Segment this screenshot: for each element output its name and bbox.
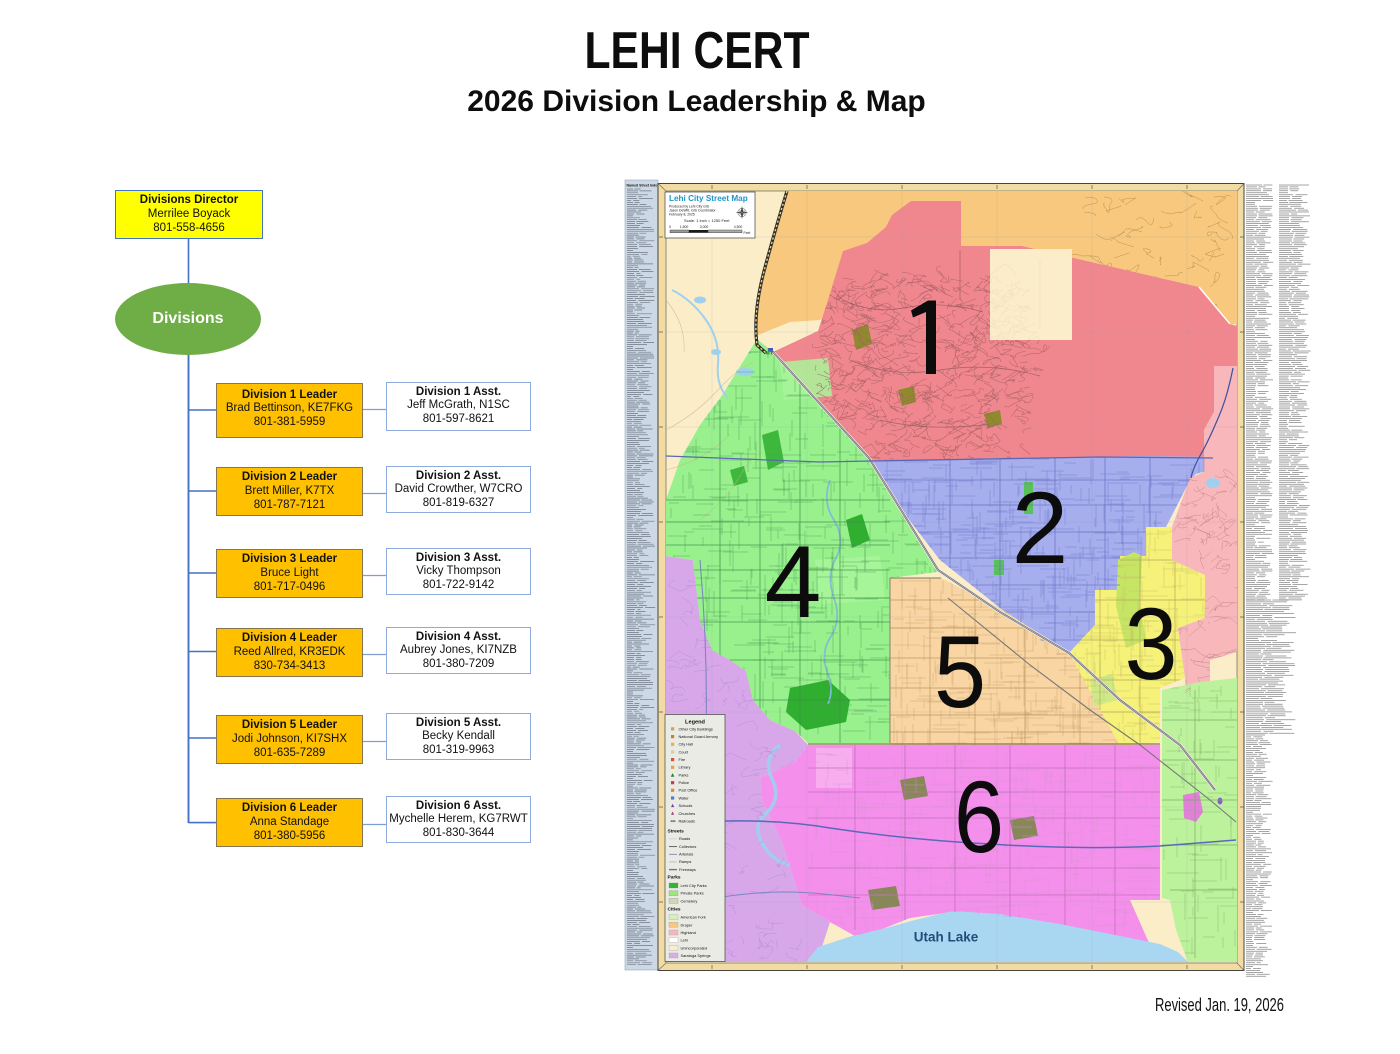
svg-text:Private Parks: Private Parks <box>681 891 704 896</box>
svg-text:3,000: 3,000 <box>700 225 709 229</box>
svg-text:3: 3 <box>1125 587 1178 701</box>
svg-text:Lehi City Street Map: Lehi City Street Map <box>669 194 748 203</box>
svg-text:Water: Water <box>679 795 690 800</box>
svg-text:Railroads: Railroads <box>679 819 695 824</box>
svg-text:0: 0 <box>669 225 671 229</box>
svg-text:Scale: 1 inch = 1250 Feet: Scale: 1 inch = 1250 Feet <box>684 218 730 223</box>
svg-text:Unincorporated: Unincorporated <box>681 945 708 950</box>
svg-text:Utah Lake: Utah Lake <box>914 930 979 945</box>
svg-text:Lehi City Parks: Lehi City Parks <box>681 883 707 888</box>
svg-text:Freeways: Freeways <box>679 867 696 872</box>
svg-text:4: 4 <box>765 525 822 639</box>
svg-text:Post Office: Post Office <box>679 788 698 793</box>
svg-text:Arterials: Arterials <box>679 852 693 857</box>
svg-text:Schools: Schools <box>679 803 693 808</box>
svg-text:Fire: Fire <box>679 757 686 762</box>
svg-text:Police: Police <box>679 780 690 785</box>
svg-text:American Fork: American Fork <box>681 915 706 920</box>
svg-text:National Guard Armory: National Guard Armory <box>679 734 719 739</box>
svg-text:Library: Library <box>679 765 691 770</box>
svg-text:Other City Buildings: Other City Buildings <box>679 726 713 731</box>
svg-text:5: 5 <box>934 615 986 729</box>
svg-text:Cities: Cities <box>668 907 681 913</box>
svg-text:Ramps: Ramps <box>679 859 691 864</box>
svg-text:1,500: 1,500 <box>680 225 689 229</box>
svg-text:Saratoga Springs: Saratoga Springs <box>681 953 711 958</box>
svg-text:Feet: Feet <box>744 231 751 235</box>
svg-text:February 8, 2025: February 8, 2025 <box>669 213 695 217</box>
svg-text:Court: Court <box>679 749 689 754</box>
svg-text:City Hall: City Hall <box>679 742 694 747</box>
svg-text:Collectors: Collectors <box>679 844 696 849</box>
svg-text:Churches: Churches <box>679 811 696 816</box>
svg-text:Draper: Draper <box>681 922 694 927</box>
svg-text:Parks: Parks <box>679 772 689 777</box>
svg-text:Streets: Streets <box>668 829 685 835</box>
svg-text:2: 2 <box>1012 471 1069 585</box>
svg-text:6: 6 <box>954 760 1004 874</box>
svg-text:4,500: 4,500 <box>734 225 743 229</box>
svg-text:Named Street Index: Named Street Index <box>627 184 660 188</box>
svg-text:Lehi: Lehi <box>681 938 688 943</box>
svg-text:Parks: Parks <box>668 875 681 881</box>
svg-text:Cemetery: Cemetery <box>681 898 698 903</box>
svg-text:Highland: Highland <box>681 930 696 935</box>
svg-text:Roads: Roads <box>679 836 690 841</box>
svg-text:Legend: Legend <box>685 720 705 726</box>
